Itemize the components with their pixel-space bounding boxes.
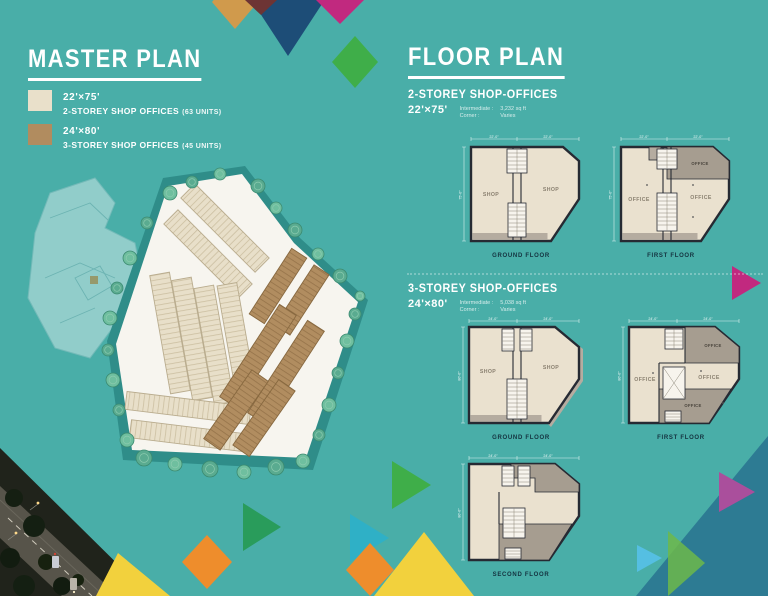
room-label: OFFICE xyxy=(684,403,701,408)
master-plan-title: MASTER PLAN xyxy=(28,47,201,81)
legend-size: 24'×80' xyxy=(63,124,222,139)
floor-plan-title: FLOOR PLAN xyxy=(408,45,564,79)
plan-3storey-first: 24'-0" 24'-0" 80'-0" OFFICE OFFICE OFFIC… xyxy=(615,315,747,433)
legend-units: (45 UNITS) xyxy=(182,143,221,150)
note-value: 5,038 sq ft xyxy=(500,300,526,306)
room-label: SHOP xyxy=(543,365,559,371)
section-heading: 2-STOREY SHOP-OFFICES xyxy=(408,89,558,101)
section-size: 22'×75' xyxy=(408,104,448,116)
dim-label: 24'-0" xyxy=(703,317,713,321)
plan-3storey-second: 24'-0" 24'-0" 80'-0" xyxy=(455,452,587,570)
note-label: Corner : xyxy=(460,307,494,313)
plan-2storey-ground: 22'-0" 22'-0" 75'-0" SHOP SHOP xyxy=(455,133,587,251)
room-label: OFFICE xyxy=(691,161,708,166)
dim-label: 22'-0" xyxy=(693,135,703,139)
legend-item-2storey: 22'×75' 2-STOREY SHOP OFFICES(63 UNITS) xyxy=(28,90,222,119)
floor-label: FIRST FLOOR xyxy=(615,435,747,441)
room-label: OFFICE xyxy=(690,195,712,201)
section-3storey-header: 3-STOREY SHOP-OFFICES 24'×80' Intermedia… xyxy=(408,283,567,313)
note-label: Corner : xyxy=(460,113,494,119)
legend-name: 2-STOREY SHOP OFFICES xyxy=(63,106,179,116)
note-value: Varies xyxy=(500,307,526,313)
section-heading: 3-STOREY SHOP-OFFICES xyxy=(408,283,558,295)
master-plan-map xyxy=(20,158,378,484)
dim-label: 75'-0" xyxy=(459,190,463,200)
dim-label: 24'-0" xyxy=(488,317,498,321)
dim-label: 80'-0" xyxy=(458,371,462,381)
legend-units: (63 UNITS) xyxy=(182,109,221,116)
note-label: Intermediate : xyxy=(460,106,494,112)
section-notes: Intermediate : 5,038 sq ft Corner : Vari… xyxy=(460,300,526,313)
legend-item-3storey: 24'×80' 3-STOREY SHOP OFFICES(45 UNITS) xyxy=(28,124,222,153)
floor-label: GROUND FLOOR xyxy=(455,435,587,441)
dotted-separator xyxy=(407,273,763,275)
dim-label: 22'-0" xyxy=(543,135,553,139)
section-2storey-header: 2-STOREY SHOP-OFFICES 22'×75' Intermedia… xyxy=(408,89,567,119)
room-label: OFFICE xyxy=(698,375,720,381)
dim-label: 75'-0" xyxy=(609,190,613,200)
legend-swatch-3storey xyxy=(28,124,52,145)
floor-label: GROUND FLOOR xyxy=(455,253,587,259)
plan-3storey-ground: 24'-0" 24'-0" 80'-0" SHOP SHOP xyxy=(455,315,587,433)
section-size: 24'×80' xyxy=(408,298,448,310)
room-label: SHOP xyxy=(480,369,496,375)
dim-label: 24'-0" xyxy=(648,317,658,321)
brochure-page: MASTER PLAN 22'×75' 2-STOREY SHOP OFFICE… xyxy=(0,0,768,596)
room-label: OFFICE xyxy=(704,343,721,348)
dim-label: 24'-0" xyxy=(543,454,553,458)
section-notes: Intermediate : 3,232 sq ft Corner : Vari… xyxy=(460,106,526,119)
dim-label: 22'-0" xyxy=(639,135,649,139)
note-value: 3,232 sq ft xyxy=(500,106,526,112)
room-label: OFFICE xyxy=(628,197,650,203)
room-label: OFFICE xyxy=(634,377,656,383)
dim-label: 24'-0" xyxy=(488,454,498,458)
floor-plan-column: FLOOR PLAN 2-STOREY SHOP-OFFICES 22'×75'… xyxy=(405,45,767,596)
floor-label: SECOND FLOOR xyxy=(455,572,587,578)
dim-label: 80'-0" xyxy=(458,508,462,518)
legend-swatch-2storey xyxy=(28,90,52,111)
dim-label: 24'-0" xyxy=(543,317,553,321)
legend-size: 22'×75' xyxy=(63,90,222,105)
legend-name: 3-STOREY SHOP OFFICES xyxy=(63,140,179,150)
room-label: SHOP xyxy=(483,192,499,198)
room-label: SHOP xyxy=(543,187,559,193)
plan-2storey-first: 22'-0" 22'-0" 75'-0" OFFICE OFFICE OFFIC… xyxy=(605,133,737,251)
floor-label: FIRST FLOOR xyxy=(605,253,737,259)
note-value: Varies xyxy=(500,113,526,119)
deco-triangles-top xyxy=(212,0,378,88)
note-label: Intermediate : xyxy=(460,300,494,306)
dim-label: 22'-0" xyxy=(489,135,499,139)
dim-label: 80'-0" xyxy=(618,371,622,381)
